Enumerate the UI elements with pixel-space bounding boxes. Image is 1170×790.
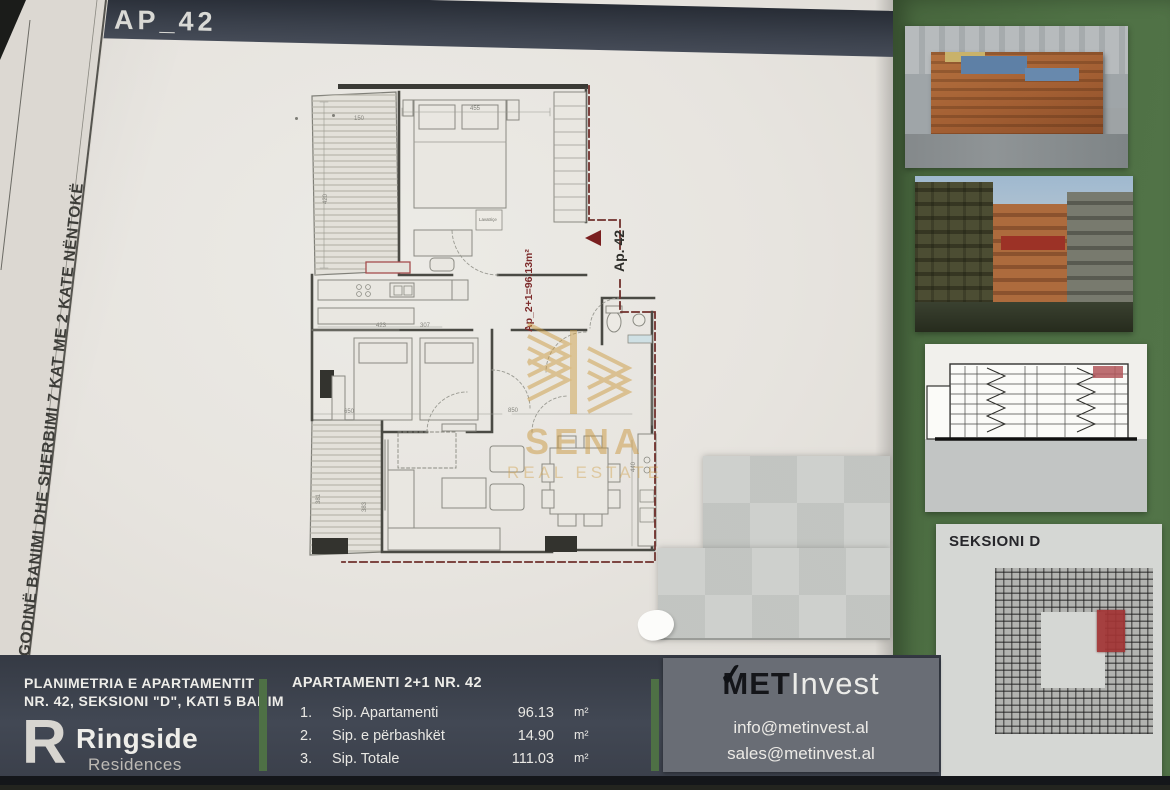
table-row: 2. Sip. e përbashkët 14.90 m²	[292, 728, 612, 748]
unit-location-marker-icon	[585, 230, 601, 246]
floor-plan: Lavatriçe	[302, 80, 668, 568]
apartment-table-title: APARTAMENTI 2+1 NR. 42	[292, 675, 482, 691]
highlighted-floor-unit	[1093, 366, 1123, 378]
bedroom2-furniture	[332, 338, 478, 431]
pier	[545, 536, 577, 552]
footer-bar: PLANIMETRIA E APARTAMENTIT NR. 42, SEKSI…	[0, 655, 941, 778]
courtyard-void	[1041, 612, 1105, 688]
sales-email: sales@metinvest.al	[663, 744, 939, 764]
green-divider	[259, 679, 267, 771]
row-unit: m²	[574, 751, 589, 765]
svg-text:440: 440	[631, 461, 637, 472]
metinvest-tick-icon: ✓	[717, 657, 746, 694]
pixelated-region	[658, 548, 890, 640]
pier	[312, 538, 348, 554]
highlighted-unit	[1097, 610, 1125, 652]
svg-text:307: 307	[420, 323, 431, 329]
table-row: 3. Sip. Totale 111.03 m²	[292, 751, 612, 771]
living-furniture	[388, 434, 656, 550]
appliance-label: Lavatriçe	[479, 217, 497, 222]
pixelated-region	[703, 456, 890, 548]
row-number: 3.	[300, 751, 312, 767]
ringside-brand: Ringside	[76, 723, 198, 755]
svg-text:850: 850	[508, 408, 519, 414]
metinvest-logo: ✓METInvest	[663, 666, 939, 702]
ringside-sub-brand: Residences	[88, 755, 182, 775]
tv-zone	[398, 432, 456, 468]
building-key-plan	[995, 568, 1153, 734]
info-email: info@metinvest.al	[663, 718, 939, 738]
row-unit: m²	[574, 728, 589, 742]
ringside-logo-icon: R	[22, 707, 67, 778]
metinvest-card: ✓METInvest info@metinvest.al sales@metin…	[663, 658, 939, 772]
kitchen-furniture	[318, 280, 468, 324]
row-number: 2.	[300, 728, 312, 744]
svg-text:423: 423	[376, 323, 387, 329]
row-label: Sip. e përbashkët	[332, 728, 445, 744]
paper-speck	[295, 117, 298, 120]
page-title: AP_42	[114, 5, 217, 38]
green-divider	[651, 679, 659, 771]
bottom-edge-strip	[0, 776, 1170, 785]
area-label: Ap_2+1=96.13m²	[523, 249, 535, 332]
wardrobe	[554, 92, 586, 222]
svg-text:381: 381	[316, 493, 322, 504]
row-number: 1.	[300, 705, 312, 721]
paper-speck	[332, 114, 335, 117]
svg-text:455: 455	[470, 106, 481, 112]
svg-text:150: 150	[354, 116, 365, 122]
table-row: 1. Sip. Apartamenti 96.13 m²	[292, 705, 612, 725]
bedroom1-furniture	[403, 100, 519, 271]
section-elevation-panel	[925, 344, 1147, 512]
row-label: Sip. Totale	[332, 751, 399, 767]
row-unit: m²	[574, 705, 589, 719]
row-value: 111.03	[488, 751, 554, 767]
seksioni-d-title: SEKSIONI D	[949, 533, 1041, 550]
row-value: 96.13	[488, 705, 554, 721]
row-value: 14.90	[488, 728, 554, 744]
unit-label: Ap. 42	[611, 230, 627, 272]
building-aerial-photo	[905, 26, 1128, 168]
metinvest-brand-light: Invest	[791, 666, 880, 701]
wall	[338, 84, 588, 89]
svg-text:420: 420	[323, 193, 329, 204]
row-label: Sip. Apartamenti	[332, 705, 438, 721]
plan-drawing: Lavatriçe	[310, 84, 656, 562]
kitchen-counter-highlight	[366, 262, 410, 273]
plan-title-line1: PLANIMETRIA E APARTAMENTIT	[24, 675, 255, 691]
svg-text:383: 383	[362, 501, 368, 512]
seksioni-d-panel: SEKSIONI D	[936, 524, 1162, 776]
svg-text:650: 650	[344, 409, 355, 415]
courtyard-photo	[915, 176, 1133, 332]
